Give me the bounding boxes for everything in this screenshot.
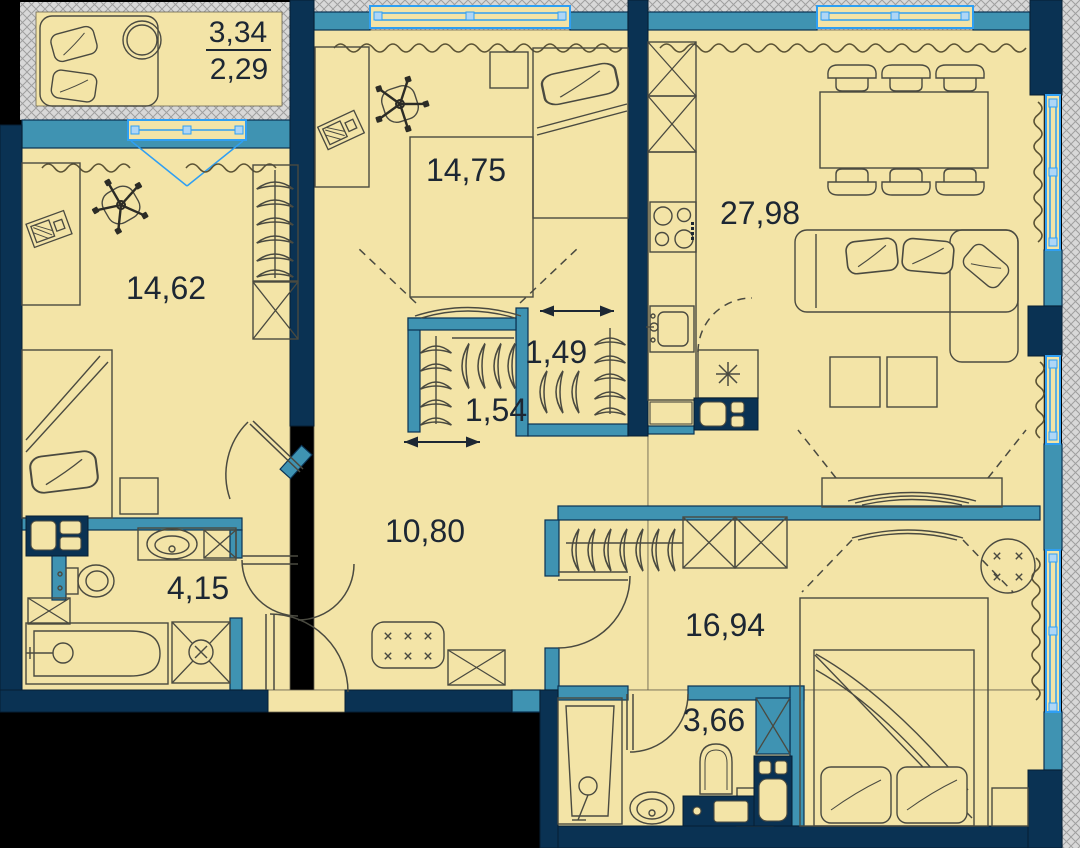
window-living-right-2 [1046,356,1060,444]
balcony-area-counted: 2,29 [210,53,268,86]
room-label: 4,15 [167,570,229,606]
pillow-icon [50,69,97,103]
window-living-right-1 [1046,95,1060,250]
toilet-icon [700,744,732,794]
room-label: 10,80 [385,513,465,549]
room-label: 16,94 [685,607,765,643]
room-label: 1,49 [525,334,587,370]
balcony-area-total: 3,34 [209,16,267,49]
room-label: 27,98 [720,195,800,231]
room-label: 14,75 [426,152,506,188]
room-label: 14,62 [126,270,206,306]
floor-plan-canvas: 3,34 2,29 14,75 27,98 14,62 1,49 1,54 10… [0,0,1080,848]
floor-plan: 3,34 2,29 14,75 27,98 14,62 1,49 1,54 10… [0,0,1080,848]
storage-column-icon [754,698,792,826]
window-living-top [817,6,973,28]
room-label: 1,54 [465,392,527,428]
window-bedroom-master [1046,550,1060,712]
window-bedroom-top [370,6,570,28]
room-label: 3,66 [683,702,745,738]
washer-dryer-icon [26,516,88,556]
vanity-icon [683,796,755,826]
